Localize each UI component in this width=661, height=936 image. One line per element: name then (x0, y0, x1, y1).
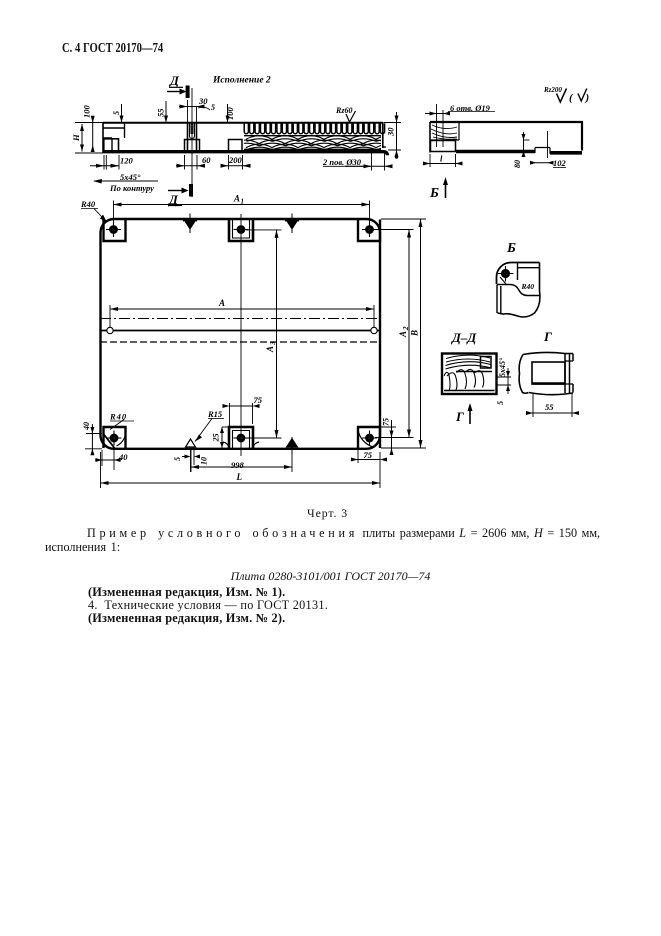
svg-text:B: B (410, 330, 420, 337)
svg-text:A: A (265, 346, 275, 353)
svg-text:30: 30 (198, 96, 208, 106)
svg-text:75: 75 (382, 418, 391, 426)
svg-text:R40: R40 (109, 412, 127, 422)
svg-text:5x45°: 5x45° (120, 172, 141, 182)
svg-text:80: 80 (513, 160, 522, 168)
svg-text:30: 30 (386, 127, 396, 137)
svg-text:998: 998 (231, 460, 245, 470)
svg-text:L: L (236, 472, 243, 482)
svg-text:A: A (233, 194, 240, 204)
svg-text:R40: R40 (80, 199, 96, 209)
svg-text:75: 75 (254, 395, 263, 405)
svg-text:Rz200: Rz200 (543, 86, 562, 94)
svg-text:200: 200 (228, 155, 243, 165)
svg-text:Г: Г (455, 409, 464, 424)
svg-text:(: ( (569, 92, 574, 104)
svg-text:3: 3 (269, 341, 277, 346)
svg-text:H: H (71, 134, 81, 142)
svg-text:25: 25 (212, 434, 221, 443)
svg-text:Д: Д (169, 73, 180, 88)
svg-text:55: 55 (545, 402, 554, 412)
svg-text:5: 5 (112, 111, 121, 115)
svg-text:Д–Д: Д–Д (451, 330, 477, 345)
svg-text:5: 5 (173, 457, 182, 461)
svg-text:102: 102 (553, 158, 567, 168)
svg-text:100: 100 (225, 107, 235, 121)
svg-text:1: 1 (241, 198, 245, 206)
svg-text:A: A (398, 331, 408, 338)
svg-text:5x45°: 5x45° (498, 357, 507, 377)
svg-text:40: 40 (118, 452, 128, 462)
svg-text:Б: Б (506, 241, 516, 256)
svg-text:Б: Б (429, 186, 439, 201)
svg-text:A: A (218, 298, 225, 308)
svg-text:Rz60: Rz60 (335, 106, 352, 115)
svg-text:l: l (440, 154, 443, 164)
svg-text:R15: R15 (207, 409, 223, 419)
svg-text:100: 100 (82, 105, 92, 119)
svg-text:R40: R40 (521, 282, 535, 291)
svg-text:По контуру: По контуру (109, 183, 154, 193)
svg-text:75: 75 (364, 450, 373, 460)
svg-text:5: 5 (496, 401, 505, 405)
svg-text:Г: Г (543, 329, 552, 344)
svg-text:120: 120 (120, 156, 134, 166)
svg-text:2 пов. Ø30: 2 пов. Ø30 (322, 157, 362, 167)
svg-text:40: 40 (82, 422, 91, 431)
svg-text:Исполнение 2: Исполнение 2 (212, 76, 271, 86)
svg-text:): ) (585, 92, 590, 104)
svg-text:10: 10 (200, 457, 209, 465)
svg-text:60: 60 (202, 155, 211, 165)
svg-text:5: 5 (211, 103, 215, 112)
svg-text:55: 55 (156, 108, 166, 117)
